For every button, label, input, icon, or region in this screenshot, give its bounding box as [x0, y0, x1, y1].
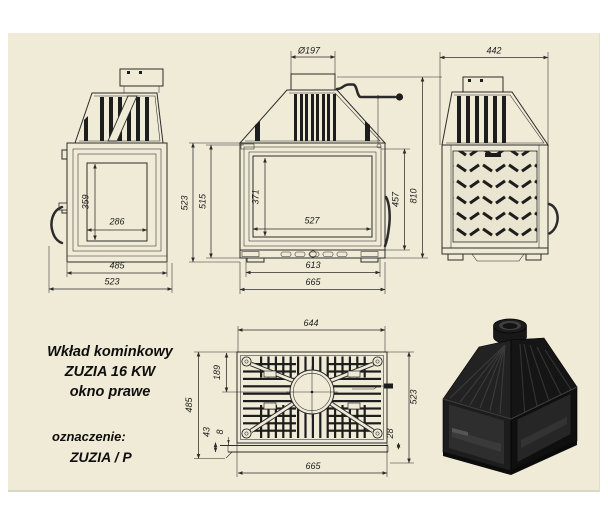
designation-value: ZUZIA / P — [26, 447, 194, 467]
dim-front-glass-height: 371 — [251, 189, 261, 204]
door-handle-side — [51, 207, 62, 243]
product-line-1: Wkład kominkowy — [26, 342, 194, 362]
view-rear: 442 — [440, 46, 558, 262]
dim-side-base-outer: 523 — [104, 277, 119, 287]
air-vents — [281, 251, 347, 257]
hinge-top — [62, 150, 67, 159]
dim-top-gap: 8 — [215, 429, 225, 434]
dim-front-glass-width: 527 — [304, 216, 320, 226]
hood-ribs — [255, 94, 370, 141]
dim-rear-width: 442 — [486, 46, 501, 56]
damper-knob — [396, 93, 403, 100]
view-front: Ø197 — [180, 46, 443, 295]
damper-lever — [337, 85, 395, 98]
dim-top-flue-position: 189 — [212, 365, 222, 380]
view-top: 644 — [184, 318, 419, 477]
product-line-3: okno prawe — [26, 382, 194, 402]
dim-top-rear-lip: 28 — [385, 428, 395, 439]
dim-side-base-inner: 485 — [109, 261, 125, 271]
dim-side-glass-height: 359 — [81, 194, 91, 209]
view-side-left: 359 286 485 523 — [49, 69, 172, 293]
dim-top-depth-outer: 523 — [409, 389, 419, 404]
spec-sheet: 359 286 485 523 Ø197 — [0, 0, 608, 519]
info-block: Wkład kominkowy ZUZIA 16 KW okno prawe o… — [26, 342, 194, 467]
dim-top-front-lip: 43 — [202, 427, 212, 437]
hood-ribs — [457, 96, 506, 143]
dim-front-height-outer: 523 — [180, 195, 190, 210]
door-handle-front — [385, 197, 390, 246]
dim-side-glass-width: 286 — [108, 217, 124, 227]
dim-front-width-outer: 665 — [305, 277, 321, 287]
dim-top-width-outer: 665 — [305, 461, 321, 471]
brand-mark — [485, 153, 501, 157]
render-3d — [443, 319, 577, 475]
dim-front-total-height: 810 — [409, 188, 419, 203]
dim-front-height-inner: 515 — [198, 193, 208, 209]
designation-block: oznaczenie: ZUZIA / P — [26, 428, 194, 467]
product-title: Wkład kominkowy ZUZIA 16 KW okno prawe — [26, 342, 194, 402]
door-handle-rear — [549, 204, 558, 234]
product-line-2: ZUZIA 16 KW — [26, 362, 194, 382]
designation-label: oznaczenie: — [26, 428, 194, 447]
rear-panel-herringbone — [453, 151, 537, 242]
dim-front-door-height: 457 — [391, 191, 401, 207]
dim-top-width-inner: 644 — [303, 318, 318, 328]
dim-front-flue-diameter: Ø197 — [297, 46, 321, 56]
dim-front-width-inner: 613 — [305, 260, 320, 270]
